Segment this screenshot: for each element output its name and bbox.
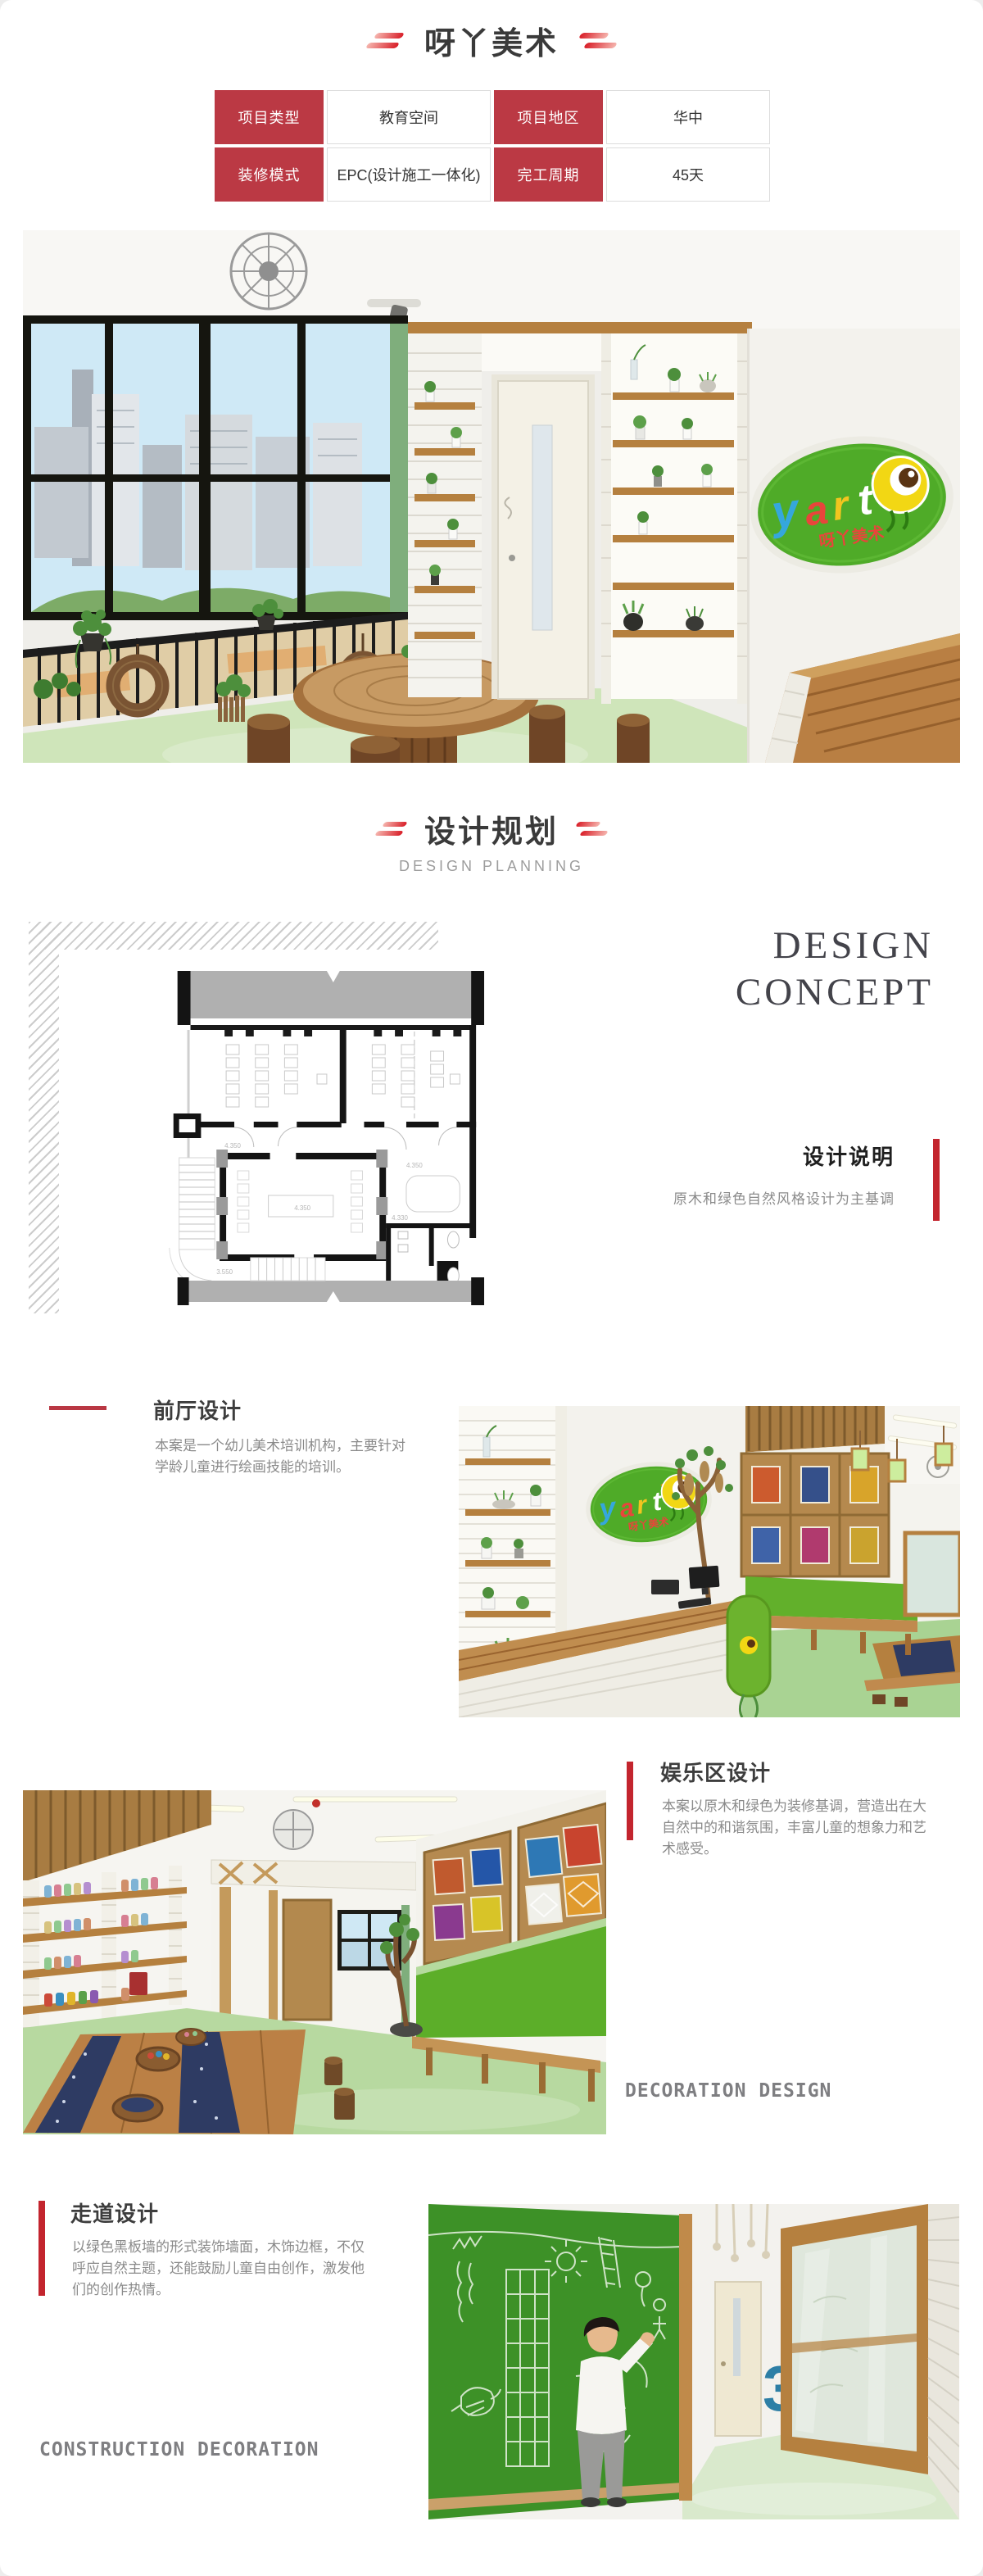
window (337, 1910, 401, 1971)
decoration-design-watermark: DECORATION DESIGN (625, 2080, 831, 2102)
svg-text:4.330: 4.330 (392, 1214, 408, 1222)
display-shelf-bay (601, 333, 747, 704)
front-hall-photo (459, 1406, 960, 1717)
front-hall-title: 前厅设计 (153, 1395, 242, 1425)
table-label: 装修模式 (215, 147, 324, 202)
project-info-table: 项目类型 教育空间 项目地区 华中 装修模式 EPC(设计施工一体化) 完工周期… (215, 90, 770, 202)
red-accent-marks-icon (367, 33, 403, 48)
floor-plan-image: 4.350 4.350 4.350 4.330 3.550 (66, 953, 487, 1315)
wood-lintel (408, 322, 752, 333)
hatch-decoration (29, 922, 59, 1313)
stairs (251, 1258, 325, 1281)
svg-text:4.350: 4.350 (406, 1162, 423, 1169)
hero-photo (23, 230, 960, 763)
table-value: EPC(设计施工一体化) (327, 147, 491, 202)
play-area-photo (23, 1790, 606, 2134)
svg-text:3.550: 3.550 (216, 1268, 233, 1276)
svg-text:4.350: 4.350 (224, 1142, 241, 1150)
ceiling-fan-icon (231, 234, 306, 309)
alarm-icon (312, 1799, 320, 1807)
svg-text:4.350: 4.350 (294, 1204, 310, 1212)
hatch-decoration (39, 922, 438, 950)
artwork-wall (741, 1454, 889, 1576)
play-area-body: 本案以原木和绿色为装修基调，营造出在大自然中的和谐氛围，丰富儿童的想象力和艺术感… (662, 1796, 935, 1860)
table-label: 完工周期 (494, 147, 603, 202)
red-line (49, 1406, 106, 1410)
design-concept-heading: DESIGN CONCEPT (736, 923, 934, 1016)
printer-icon (651, 1580, 679, 1594)
page-title: 呀丫美术 (424, 18, 559, 63)
design-note-text: 原木和绿色自然风格设计为主基调 (673, 1187, 895, 1208)
table-value: 45天 (606, 147, 770, 202)
glass-partition (781, 2204, 928, 2474)
brick-wall-edge (928, 2204, 959, 2519)
section-header-design-planning: 设计规划 DESIGN PLANNING (0, 806, 983, 875)
section-subtitle: DESIGN PLANNING (0, 858, 983, 875)
red-bar (39, 2201, 45, 2296)
red-bar (933, 1139, 940, 1221)
section-title: 设计规划 (424, 806, 559, 851)
play-area-title: 娱乐区设计 (660, 1757, 771, 1787)
front-hall-body: 本案是一个幼儿美术培训机构，主要针对学龄儿童进行绘画技能的培训。 (155, 1435, 414, 1478)
design-note: 设计说明 原木和绿色自然风格设计为主基调 (673, 1141, 895, 1208)
chalkboard-frame (679, 2214, 692, 2501)
case-study-page: y a r t 呀丫美术 呀丫美术 项目类型 教育空间 项目地区 华中 装修模式… (0, 0, 983, 2576)
window-wall (23, 315, 408, 620)
chalkboard-wall (428, 2204, 682, 2519)
stairs (179, 1158, 215, 1249)
table-value: 教育空间 (327, 90, 491, 144)
construction-decoration-watermark: CONSTRUCTION DECORATION (39, 2439, 319, 2460)
red-accent-marks-icon (580, 33, 616, 48)
page-header: 呀丫美术 (0, 18, 983, 63)
red-bar (627, 1762, 633, 1840)
corridor-body: 以绿色黑板墙的形式装饰墙面，木饰边框，不仅呼应自然主题，还能鼓励儿童自由创作，激… (72, 2237, 372, 2301)
entry-door (482, 333, 605, 699)
table-label: 项目地区 (494, 90, 603, 144)
red-accent-marks-icon (577, 822, 607, 836)
red-accent-marks-icon (376, 822, 406, 836)
shelf-pillar (408, 327, 482, 697)
table-value: 华中 (606, 90, 770, 144)
design-note-title: 设计说明 (673, 1141, 895, 1171)
table-label: 项目类型 (215, 90, 324, 144)
corridor-photo: 3 (428, 2204, 959, 2519)
corridor-title: 走道设计 (70, 2197, 159, 2228)
